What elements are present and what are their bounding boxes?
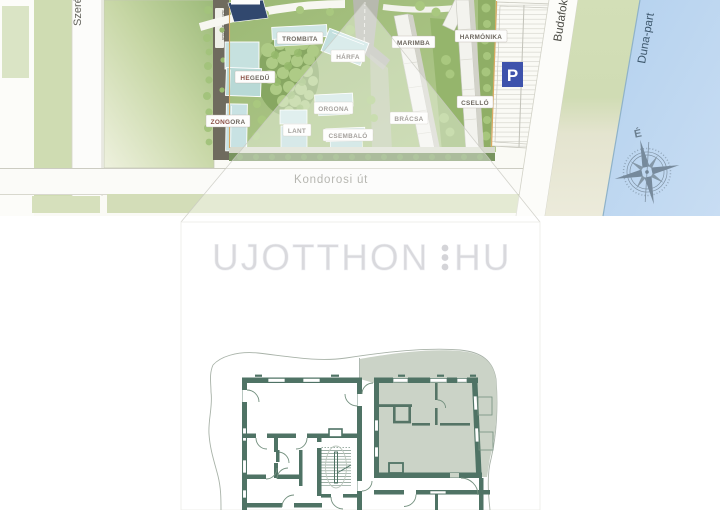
svg-text:Szerémi út: Szerémi út [72,0,84,26]
svg-text:TROMBITA: TROMBITA [282,36,318,43]
svg-text:CSELLÓ: CSELLÓ [461,98,489,107]
svg-text:ZONGORA: ZONGORA [211,119,246,126]
svg-text:P: P [507,66,518,85]
svg-text:HU: HU [454,237,511,278]
svg-text:HARMÓNIKA: HARMÓNIKA [460,32,503,41]
svg-text:MARIMBA: MARIMBA [397,40,430,47]
svg-text:UJOTTHON: UJOTTHON [212,237,429,278]
svg-text:HEGEDŰ: HEGEDŰ [240,73,269,82]
